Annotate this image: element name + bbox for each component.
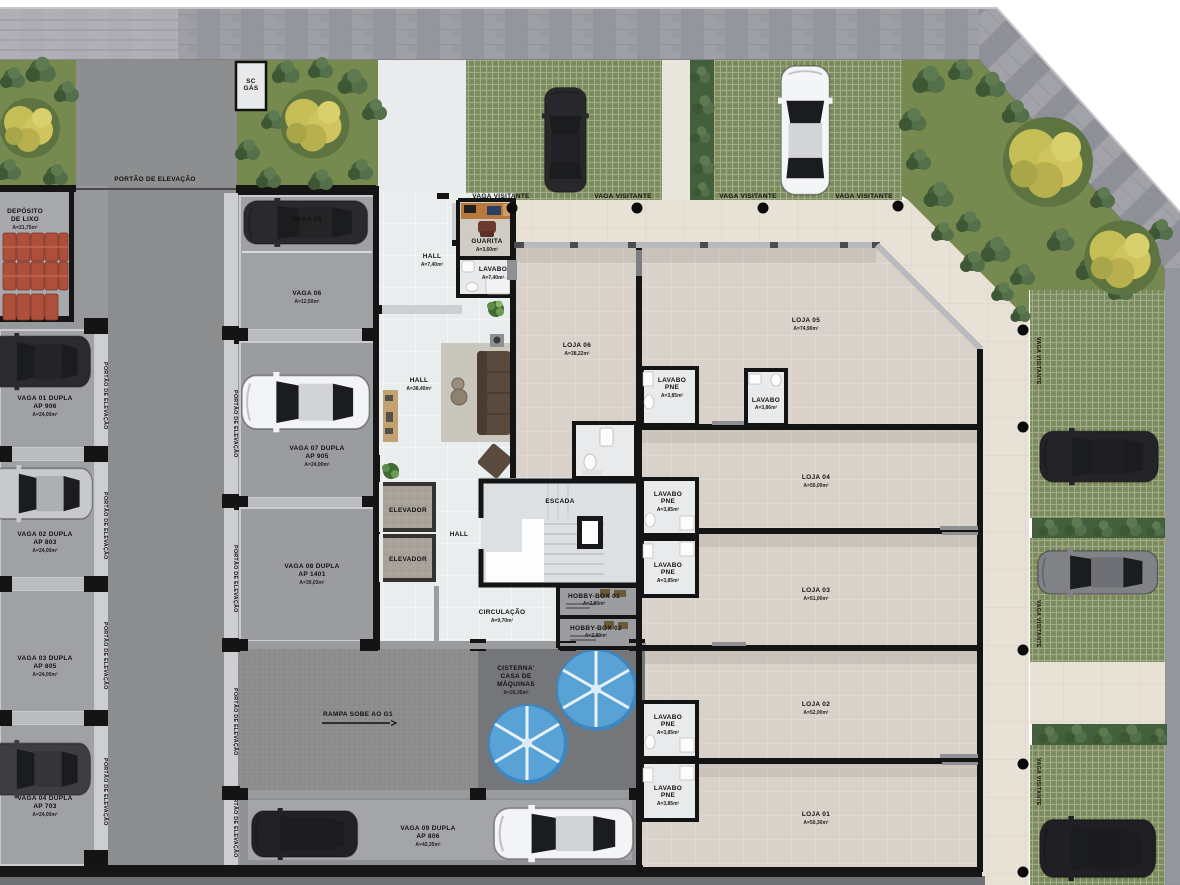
svg-text:DEPÓSITO: DEPÓSITO [7, 206, 43, 215]
svg-text:A=7,40m²: A=7,40m² [482, 275, 505, 281]
svg-text:VAGA 02 DUPLA: VAGA 02 DUPLA [17, 531, 72, 538]
svg-text:AP 906: AP 906 [33, 403, 56, 410]
svg-text:AP 905: AP 905 [305, 453, 328, 460]
svg-text:PORTÃO DE ELEVAÇÃO: PORTÃO DE ELEVAÇÃO [102, 758, 109, 826]
svg-text:PORTÃO DE ELEVAÇÃO: PORTÃO DE ELEVAÇÃO [232, 390, 239, 458]
svg-text:A=30,03m²: A=30,03m² [299, 580, 324, 586]
svg-text:A=24,00m²: A=24,00m² [32, 548, 57, 554]
svg-text:VAGA VISITANTE: VAGA VISITANTE [719, 193, 777, 200]
svg-text:A=38,40m²: A=38,40m² [406, 386, 431, 392]
svg-text:PORTÃO DE ELEVAÇÃO: PORTÃO DE ELEVAÇÃO [232, 790, 239, 858]
svg-text:PORTÃO DE ELEVAÇÃO: PORTÃO DE ELEVAÇÃO [102, 492, 109, 560]
svg-text:A=24,00m²: A=24,00m² [32, 812, 57, 818]
svg-text:PORTÃO DE ELEVAÇÃO: PORTÃO DE ELEVAÇÃO [102, 362, 109, 430]
svg-text:HOBBY-BOX 01: HOBBY-BOX 01 [568, 593, 620, 600]
svg-text:LAVABO: LAVABO [654, 714, 682, 721]
svg-text:VAGA VISITANTE: VAGA VISITANTE [472, 193, 530, 200]
svg-text:VAGA 06: VAGA 06 [292, 290, 321, 297]
svg-text:VAGA VISITANTE: VAGA VISITANTE [1035, 758, 1041, 806]
svg-text:LAVABO: LAVABO [752, 397, 780, 404]
svg-text:AP 803: AP 803 [33, 539, 56, 546]
svg-text:PNE: PNE [661, 721, 676, 728]
svg-text:DE LIXO: DE LIXO [11, 216, 39, 223]
svg-text:A=3,85m²: A=3,85m² [657, 507, 680, 513]
svg-text:VAGA 07 DUPLA: VAGA 07 DUPLA [289, 445, 344, 452]
svg-text:A=21,75m²: A=21,75m² [12, 225, 37, 231]
svg-text:A=24,00m²: A=24,00m² [304, 462, 329, 468]
svg-text:A=12,50m²: A=12,50m² [294, 224, 319, 230]
svg-text:LAVABO: LAVABO [479, 266, 507, 273]
svg-text:LOJA 06: LOJA 06 [563, 342, 591, 349]
svg-text:HALL: HALL [423, 253, 442, 260]
svg-text:LOJA 02: LOJA 02 [802, 701, 830, 708]
svg-text:GÁS: GÁS [244, 83, 259, 92]
svg-text:PNE: PNE [665, 384, 680, 391]
svg-text:A=12,50m²: A=12,50m² [294, 299, 319, 305]
svg-text:A=9,70m²: A=9,70m² [491, 618, 514, 624]
svg-text:MÁQUINAS: MÁQUINAS [497, 679, 535, 688]
svg-text:LOJA 03: LOJA 03 [802, 587, 830, 594]
svg-text:CIRCULAÇÃO: CIRCULAÇÃO [479, 607, 526, 616]
svg-text:A=42,35m²: A=42,35m² [415, 842, 440, 848]
svg-text:LOJA 04: LOJA 04 [802, 474, 830, 481]
svg-text:VAGA 08 DUPLA: VAGA 08 DUPLA [284, 563, 339, 570]
svg-text:ELEVADOR: ELEVADOR [389, 507, 427, 514]
svg-text:VAGA 04 DUPLA: VAGA 04 DUPLA [17, 795, 72, 802]
svg-text:ELEVADOR: ELEVADOR [389, 556, 427, 563]
svg-text:AP 805: AP 805 [33, 663, 56, 670]
svg-text:A=3,60m²: A=3,60m² [476, 247, 499, 253]
svg-text:A=24,00m²: A=24,00m² [32, 412, 57, 418]
svg-text:PNE: PNE [661, 792, 676, 799]
svg-text:ESCADA: ESCADA [545, 498, 574, 505]
svg-text:PORTÃO DE ELEVAÇÃO: PORTÃO DE ELEVAÇÃO [232, 688, 239, 756]
svg-text:A=26,35m²: A=26,35m² [503, 690, 528, 696]
svg-text:VAGA 05: VAGA 05 [292, 216, 321, 223]
svg-text:PORTÃO DE ELEVAÇÃO: PORTÃO DE ELEVAÇÃO [232, 545, 239, 613]
svg-text:PORTÃO DE ELEVAÇÃO: PORTÃO DE ELEVAÇÃO [114, 174, 195, 183]
svg-text:LAVABO: LAVABO [654, 785, 682, 792]
svg-text:A=74,90m²: A=74,90m² [793, 326, 818, 332]
svg-text:LOJA 01: LOJA 01 [802, 811, 830, 818]
svg-text:A=50,30m²: A=50,30m² [803, 820, 828, 826]
svg-text:A=51,00m²: A=51,00m² [803, 596, 828, 602]
svg-text:AP 1401: AP 1401 [298, 571, 325, 578]
svg-text:CISTERNA': CISTERNA' [497, 665, 535, 672]
svg-text:A=3,86m²: A=3,86m² [755, 405, 778, 411]
svg-text:VAGA VISITANTE: VAGA VISITANTE [1035, 600, 1041, 648]
svg-text:PNE: PNE [661, 498, 676, 505]
svg-text:VAGA VISITANTE: VAGA VISITANTE [1035, 337, 1041, 385]
svg-text:A=52,00m²: A=52,00m² [803, 710, 828, 716]
svg-text:HALL: HALL [410, 377, 429, 384]
svg-text:RAMPA SOBE AO G1: RAMPA SOBE AO G1 [323, 711, 393, 718]
svg-text:VAGA 03 DUPLA: VAGA 03 DUPLA [17, 655, 72, 662]
svg-text:A=3,85m²: A=3,85m² [661, 393, 684, 399]
svg-text:HALL: HALL [450, 531, 469, 538]
svg-text:A=7,40m²: A=7,40m² [421, 262, 444, 268]
svg-text:A=3,85m²: A=3,85m² [657, 730, 680, 736]
svg-text:A=24,00m²: A=24,00m² [32, 672, 57, 678]
svg-text:SC: SC [246, 78, 256, 85]
svg-text:LAVABO: LAVABO [654, 491, 682, 498]
svg-text:HOBBY-BOX 02: HOBBY-BOX 02 [570, 625, 622, 632]
svg-text:PORTÃO DE ELEVAÇÃO: PORTÃO DE ELEVAÇÃO [102, 622, 109, 690]
svg-text:A=2,80m²: A=2,80m² [585, 633, 608, 639]
svg-text:VAGA VISITANTE: VAGA VISITANTE [835, 193, 893, 200]
svg-text:A=50,00m²: A=50,00m² [803, 483, 828, 489]
svg-text:GUARITA: GUARITA [471, 238, 502, 245]
svg-text:VAGA VISITANTE: VAGA VISITANTE [594, 193, 652, 200]
svg-text:CASA DE: CASA DE [500, 673, 531, 680]
svg-text:A=3,85m²: A=3,85m² [657, 578, 680, 584]
svg-text:PNE: PNE [661, 569, 676, 576]
svg-text:LAVABO: LAVABO [654, 562, 682, 569]
svg-text:A=3,85m²: A=3,85m² [657, 801, 680, 807]
svg-text:A=38,22m²: A=38,22m² [564, 351, 589, 357]
svg-text:LOJA 05: LOJA 05 [792, 317, 820, 324]
svg-text:VAGA 01 DUPLA: VAGA 01 DUPLA [17, 395, 72, 402]
svg-text:LAVABO: LAVABO [658, 377, 686, 384]
svg-text:A=2,80m²: A=2,80m² [583, 601, 606, 607]
svg-text:VAGA 09 DUPLA: VAGA 09 DUPLA [400, 825, 455, 832]
svg-text:AP 703: AP 703 [33, 803, 56, 810]
svg-text:AP 806: AP 806 [416, 833, 439, 840]
